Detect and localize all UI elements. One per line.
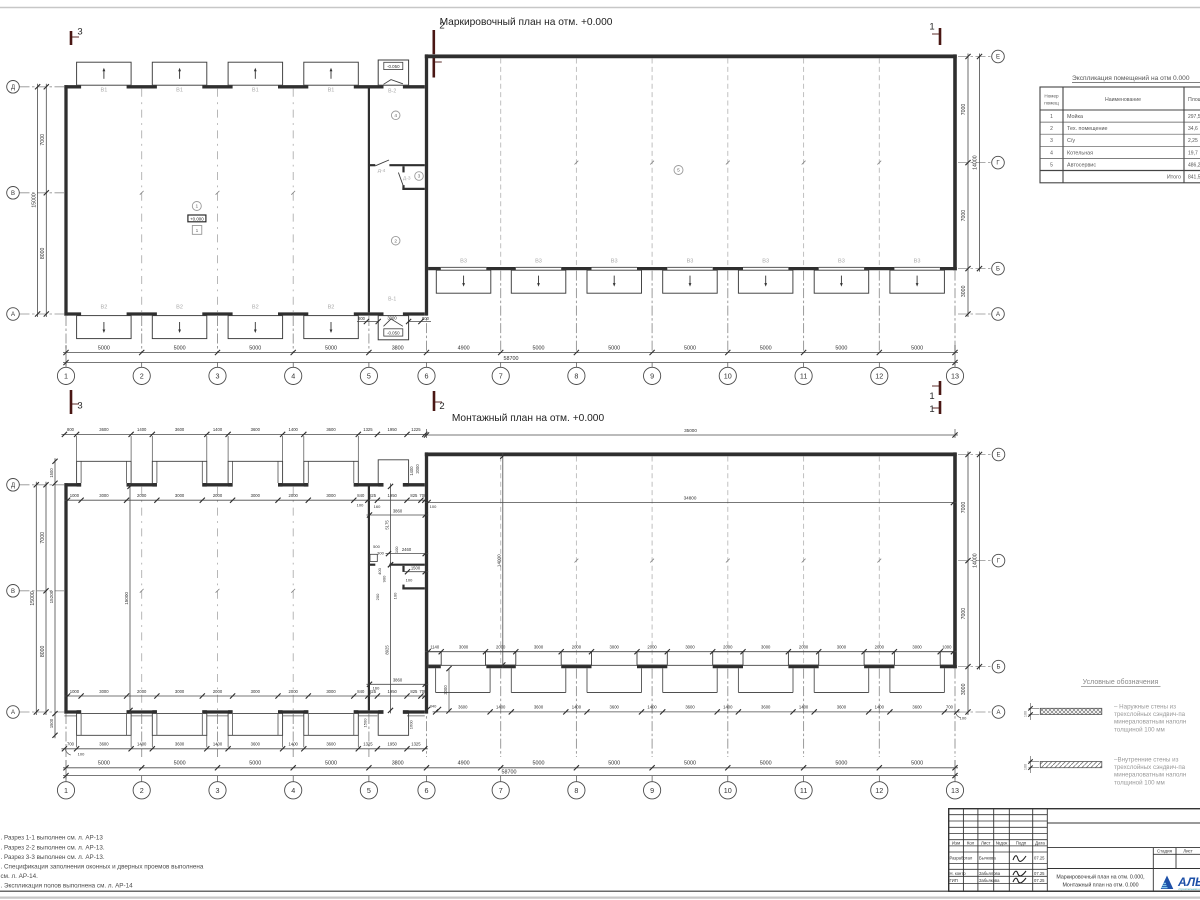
- svg-text:В1: В1: [176, 87, 183, 93]
- svg-text:1400: 1400: [496, 705, 506, 710]
- svg-text:15000: 15000: [32, 193, 38, 208]
- svg-text:297,5: 297,5: [1188, 114, 1200, 120]
- svg-text:3: 3: [418, 174, 421, 180]
- svg-text:В2: В2: [100, 305, 107, 311]
- svg-text:2000: 2000: [213, 493, 223, 498]
- svg-text:А: А: [11, 312, 15, 318]
- svg-text:1400: 1400: [213, 742, 223, 747]
- svg-text:3: 3: [216, 786, 220, 795]
- svg-text:минераловатным наполн: минераловатным наполн: [1114, 772, 1186, 779]
- svg-text:1400: 1400: [137, 742, 147, 747]
- svg-text:5000: 5000: [533, 345, 545, 351]
- svg-text:5000: 5000: [325, 345, 337, 351]
- svg-text:8: 8: [574, 372, 578, 381]
- svg-text:07.25: 07.25: [1034, 878, 1045, 883]
- svg-text:5000: 5000: [608, 760, 620, 766]
- svg-text:В3: В3: [460, 259, 467, 265]
- svg-text:14000: 14000: [497, 554, 502, 567]
- svg-text:толщиной 100 мм: толщиной 100 мм: [1114, 726, 1165, 733]
- svg-text:5000: 5000: [174, 760, 186, 766]
- svg-text:3000: 3000: [459, 644, 469, 649]
- svg-text:7000: 7000: [961, 104, 967, 116]
- svg-text:1325: 1325: [363, 742, 373, 747]
- svg-text:№док: №док: [996, 841, 1008, 846]
- svg-text:1000: 1000: [70, 689, 80, 694]
- svg-text:Забьякова: Забьякова: [979, 878, 1000, 883]
- svg-text:7: 7: [499, 372, 503, 381]
- svg-text:А: А: [996, 710, 1000, 716]
- svg-text:15000: 15000: [30, 591, 36, 606]
- svg-text:. Разрез 1-1 выполнен см. л. А: . Разрез 1-1 выполнен см. л. АР-13: [1, 835, 104, 842]
- svg-text:1950: 1950: [388, 493, 398, 498]
- svg-text:Маркировочный план на отм. +0.: Маркировочный план на отм. +0.000: [440, 17, 613, 28]
- svg-text:2,25: 2,25: [1188, 138, 1198, 144]
- svg-text:500: 500: [373, 544, 380, 549]
- svg-text:Д-3: Д-3: [403, 176, 411, 182]
- svg-text:3600: 3600: [610, 705, 620, 710]
- svg-text:1: 1: [196, 228, 199, 234]
- svg-text:5000: 5000: [608, 345, 620, 351]
- svg-text:1950: 1950: [388, 742, 398, 747]
- svg-text:11: 11: [800, 372, 807, 381]
- svg-text:1400: 1400: [799, 705, 809, 710]
- svg-text:ГИП: ГИП: [950, 878, 958, 883]
- svg-text:5000: 5000: [174, 345, 186, 351]
- svg-text:5: 5: [367, 372, 371, 381]
- svg-text:5000: 5000: [98, 345, 110, 351]
- svg-text:100: 100: [394, 546, 399, 553]
- svg-text:5000: 5000: [911, 345, 923, 351]
- svg-text:9: 9: [650, 786, 654, 795]
- svg-text:486,2: 486,2: [1188, 163, 1200, 169]
- svg-text:1400: 1400: [723, 705, 733, 710]
- svg-text:Подп: Подп: [1016, 841, 1027, 846]
- svg-text:5000: 5000: [835, 345, 847, 351]
- svg-text:3000: 3000: [961, 683, 967, 695]
- svg-text:1400: 1400: [572, 705, 582, 710]
- svg-text:5: 5: [677, 168, 680, 174]
- svg-text:400: 400: [377, 567, 382, 574]
- svg-text:Бычкова: Бычкова: [979, 856, 996, 861]
- svg-text:Площадь: Площадь: [1188, 97, 1200, 103]
- svg-text:Н. контр: Н. контр: [950, 871, 967, 876]
- svg-text:3000: 3000: [326, 493, 336, 498]
- svg-text:1: 1: [929, 391, 934, 402]
- svg-text:1140: 1140: [430, 644, 440, 649]
- svg-text:825: 825: [410, 493, 418, 498]
- svg-text:5000: 5000: [249, 345, 261, 351]
- svg-text:2: 2: [394, 238, 397, 244]
- svg-text:14000: 14000: [972, 155, 978, 170]
- svg-text:1: 1: [64, 786, 68, 795]
- svg-text:10: 10: [724, 786, 732, 795]
- svg-text:1325: 1325: [363, 427, 373, 432]
- svg-text:1: 1: [64, 372, 68, 381]
- svg-text:3600: 3600: [761, 705, 771, 710]
- svg-text:19,7: 19,7: [1188, 150, 1198, 156]
- svg-text:3600: 3600: [685, 705, 695, 710]
- svg-text:100: 100: [430, 504, 437, 509]
- svg-text:1400: 1400: [647, 705, 657, 710]
- svg-text:В1: В1: [100, 87, 107, 93]
- svg-text:3000: 3000: [387, 315, 397, 320]
- svg-text:С/у: С/у: [1067, 138, 1075, 144]
- svg-text:4: 4: [394, 113, 397, 119]
- svg-text:+0.000: +0.000: [190, 216, 204, 221]
- svg-text:1950: 1950: [388, 427, 398, 432]
- svg-text:100: 100: [1024, 711, 1028, 717]
- svg-text:толщиной 100 мм: толщиной 100 мм: [1114, 779, 1165, 786]
- svg-text:8000: 8000: [40, 248, 46, 260]
- svg-text:100: 100: [78, 752, 85, 757]
- svg-text:2000: 2000: [723, 644, 733, 649]
- svg-text:8: 8: [574, 786, 578, 795]
- svg-text:В-1: В-1: [388, 297, 396, 303]
- svg-text:Кол: Кол: [967, 841, 975, 846]
- svg-text:4: 4: [291, 786, 295, 795]
- svg-text:3600: 3600: [534, 705, 544, 710]
- svg-text:840: 840: [357, 493, 365, 498]
- svg-text:700: 700: [946, 705, 954, 710]
- svg-text:– Наружные стены из: – Наружные стены из: [1114, 704, 1176, 711]
- svg-text:Б: Б: [997, 665, 1001, 671]
- svg-text:В3: В3: [762, 259, 769, 265]
- svg-text:3000: 3000: [175, 689, 185, 694]
- svg-text:2: 2: [439, 401, 444, 412]
- svg-text:3600: 3600: [326, 427, 336, 432]
- svg-text:2000: 2000: [572, 644, 582, 649]
- svg-text:07.25: 07.25: [1034, 871, 1045, 876]
- svg-text:Д-4: Д-4: [378, 168, 386, 174]
- svg-text:7000: 7000: [961, 210, 967, 222]
- svg-text:7: 7: [499, 786, 503, 795]
- svg-text:8925: 8925: [384, 645, 389, 655]
- svg-text:14000: 14000: [972, 553, 978, 568]
- svg-text:Котельная: Котельная: [1067, 150, 1093, 156]
- svg-text:15200: 15200: [49, 590, 54, 603]
- svg-text:3600: 3600: [99, 742, 109, 747]
- svg-text:В2: В2: [176, 305, 183, 311]
- svg-text:160: 160: [373, 686, 380, 691]
- svg-text:1: 1: [1050, 114, 1053, 120]
- svg-text:3600: 3600: [912, 705, 922, 710]
- svg-text:Е: Е: [996, 453, 1000, 459]
- svg-text:900: 900: [382, 575, 387, 582]
- svg-text:5000: 5000: [325, 760, 337, 766]
- svg-text:34800: 34800: [684, 495, 697, 500]
- svg-text:840: 840: [357, 689, 365, 694]
- svg-text:1: 1: [195, 204, 198, 210]
- svg-text:2000: 2000: [415, 464, 420, 474]
- svg-text:3000: 3000: [251, 493, 261, 498]
- svg-text:2000: 2000: [875, 644, 885, 649]
- svg-text:2: 2: [140, 786, 144, 795]
- svg-text:2: 2: [140, 372, 144, 381]
- svg-text:3000: 3000: [251, 689, 261, 694]
- svg-text:3000: 3000: [761, 644, 771, 649]
- svg-text:Условные обозначения: Условные обозначения: [1083, 678, 1159, 686]
- svg-text:3000: 3000: [961, 285, 967, 297]
- svg-text:2000: 2000: [137, 689, 147, 694]
- svg-text:3000: 3000: [534, 644, 544, 649]
- svg-text:3000: 3000: [99, 689, 109, 694]
- svg-text:3000: 3000: [99, 493, 109, 498]
- svg-text:3600: 3600: [99, 427, 109, 432]
- svg-text:А: А: [11, 710, 15, 716]
- svg-text:Разработал: Разработал: [950, 856, 973, 861]
- svg-text:В: В: [11, 191, 15, 197]
- svg-text:7000: 7000: [961, 608, 967, 620]
- svg-text:11: 11: [800, 786, 807, 795]
- svg-text:3600: 3600: [175, 427, 185, 432]
- svg-text:В1: В1: [328, 87, 335, 93]
- svg-text:Забьялова: Забьялова: [979, 871, 1001, 876]
- svg-text:В: В: [11, 589, 15, 595]
- svg-text:841,5: 841,5: [1188, 175, 1200, 181]
- svg-text:см. л. АР-14.: см. л. АР-14.: [1, 873, 39, 880]
- svg-text:1: 1: [929, 22, 934, 33]
- svg-text:3000: 3000: [443, 685, 448, 695]
- svg-text:3: 3: [216, 372, 220, 381]
- svg-text:1950: 1950: [388, 689, 398, 694]
- svg-text:35000: 35000: [684, 428, 697, 433]
- svg-text:1400: 1400: [409, 466, 414, 476]
- svg-text:. Разрез 3-3 выполнен см. л. А: . Разрез 3-3 выполнен см. л. АР-13.: [1, 854, 105, 861]
- svg-text:5: 5: [367, 786, 371, 795]
- svg-text:3000: 3000: [685, 644, 695, 649]
- svg-text:1400: 1400: [213, 427, 223, 432]
- svg-text:Мойка: Мойка: [1067, 113, 1083, 120]
- svg-text:825: 825: [369, 493, 377, 498]
- svg-text:1000: 1000: [942, 644, 952, 649]
- svg-text:1: 1: [929, 404, 934, 415]
- svg-text:строительная компания: строительная компания: [1179, 887, 1200, 891]
- svg-text:Тех. помещение: Тех. помещение: [1067, 126, 1108, 132]
- svg-text:9: 9: [650, 372, 654, 381]
- svg-text:5000: 5000: [533, 760, 545, 766]
- svg-text:3600: 3600: [175, 742, 185, 747]
- svg-text:8000: 8000: [40, 646, 46, 658]
- svg-text:В3: В3: [838, 259, 845, 265]
- svg-text:100: 100: [406, 578, 413, 583]
- svg-text:2000: 2000: [647, 644, 657, 649]
- svg-text:100: 100: [960, 716, 967, 721]
- svg-text:-0.050: -0.050: [387, 331, 400, 336]
- svg-text:5000: 5000: [684, 760, 696, 766]
- svg-text:3800: 3800: [392, 345, 404, 351]
- svg-text:13: 13: [951, 372, 959, 381]
- svg-text:5000: 5000: [911, 760, 923, 766]
- svg-text:4: 4: [1050, 150, 1053, 156]
- svg-text:3: 3: [1050, 138, 1053, 144]
- svg-text:Б: Б: [996, 267, 1000, 273]
- svg-text:5000: 5000: [684, 345, 696, 351]
- svg-text:В1: В1: [252, 87, 259, 93]
- svg-text:Лист: Лист: [981, 841, 991, 846]
- svg-text:5000: 5000: [760, 345, 772, 351]
- svg-text:12: 12: [875, 372, 883, 381]
- svg-text:3000: 3000: [610, 644, 620, 649]
- svg-text:. Разрез 2-2 выполнен см. л. А: . Разрез 2-2 выполнен см. л. АР-13.: [1, 844, 105, 851]
- svg-text:Стадия: Стадия: [1157, 849, 1173, 854]
- svg-text:7000: 7000: [40, 532, 46, 544]
- svg-text:10: 10: [724, 372, 732, 381]
- svg-text:2460: 2460: [402, 547, 412, 552]
- svg-text:07.25: 07.25: [1034, 856, 1045, 861]
- svg-text:–Внутренние стены из: –Внутренние стены из: [1114, 757, 1179, 764]
- svg-text:13: 13: [951, 786, 959, 795]
- svg-text:. Экспликация полов выполнена: . Экспликация полов выполнена см. л. АР-…: [1, 883, 134, 890]
- svg-text:2000: 2000: [289, 689, 299, 694]
- svg-text:1325: 1325: [411, 742, 421, 747]
- svg-text:1600: 1600: [409, 720, 414, 730]
- svg-text:3600: 3600: [458, 705, 468, 710]
- svg-text:1225: 1225: [411, 427, 421, 432]
- svg-text:Е: Е: [996, 55, 1000, 61]
- svg-text:Итого: Итого: [1167, 175, 1181, 181]
- svg-text:3000: 3000: [175, 493, 185, 498]
- svg-text:2000: 2000: [799, 644, 809, 649]
- svg-text:2000: 2000: [289, 493, 299, 498]
- svg-text:3600: 3600: [251, 427, 261, 432]
- svg-text:1500: 1500: [49, 468, 54, 478]
- svg-text:3600: 3600: [251, 742, 261, 747]
- svg-text:2000: 2000: [213, 689, 223, 694]
- svg-text:34,6: 34,6: [1188, 126, 1198, 132]
- svg-text:3600: 3600: [837, 705, 847, 710]
- svg-text:5000: 5000: [760, 760, 772, 766]
- svg-text:помещ: помещ: [1044, 101, 1059, 106]
- svg-text:1400: 1400: [289, 427, 299, 432]
- svg-text:Монтажный план на отм. 0.000: Монтажный план на отм. 0.000: [1062, 881, 1138, 888]
- svg-text:2: 2: [439, 21, 444, 32]
- svg-text:В-2: В-2: [388, 88, 396, 94]
- svg-text:2: 2: [1050, 126, 1053, 132]
- svg-text:В2: В2: [252, 305, 259, 311]
- svg-text:300: 300: [377, 551, 384, 556]
- svg-text:Номер: Номер: [1044, 94, 1059, 99]
- svg-text:3000: 3000: [837, 644, 847, 649]
- svg-text:3: 3: [77, 27, 82, 38]
- svg-text:трехслойных сэндвич-па: трехслойных сэндвич-па: [1114, 764, 1186, 771]
- svg-text:58700: 58700: [502, 769, 517, 775]
- svg-text:3860: 3860: [393, 678, 403, 683]
- svg-text:трехслойных сэндвич-па: трехслойных сэндвич-па: [1114, 711, 1186, 718]
- svg-text:-0.050: -0.050: [387, 64, 400, 69]
- svg-text:3600: 3600: [326, 742, 336, 747]
- svg-text:1400: 1400: [289, 742, 299, 747]
- svg-text:800: 800: [422, 316, 430, 321]
- svg-text:Лист: Лист: [1183, 849, 1193, 854]
- svg-text:6: 6: [425, 786, 429, 795]
- svg-text:5000: 5000: [98, 760, 110, 766]
- svg-text:Наименование: Наименование: [1105, 97, 1141, 103]
- svg-text:3800: 3800: [392, 760, 404, 766]
- svg-text:В3: В3: [914, 259, 921, 265]
- svg-text:3: 3: [77, 401, 82, 412]
- svg-text:15000: 15000: [124, 592, 129, 605]
- svg-text:5175: 5175: [384, 520, 389, 530]
- svg-text:В3: В3: [535, 259, 542, 265]
- svg-text:4: 4: [291, 372, 295, 381]
- svg-text:700: 700: [67, 742, 75, 747]
- svg-text:минераловатным наполн: минераловатным наполн: [1114, 719, 1186, 726]
- svg-text:Д: Д: [11, 85, 15, 91]
- svg-text:3000: 3000: [912, 644, 922, 649]
- svg-text:58700: 58700: [504, 356, 519, 362]
- svg-text:12: 12: [875, 786, 883, 795]
- svg-text:. Спецификация заполнения окон: . Спецификация заполнения оконных и двер…: [1, 863, 204, 870]
- svg-text:1000: 1000: [70, 493, 80, 498]
- svg-text:5000: 5000: [835, 760, 847, 766]
- svg-text:840: 840: [430, 704, 437, 709]
- svg-text:1400: 1400: [137, 427, 147, 432]
- svg-text:800: 800: [67, 427, 75, 432]
- svg-text:800: 800: [358, 316, 366, 321]
- svg-text:Дата: Дата: [1035, 841, 1045, 846]
- svg-text:100: 100: [392, 592, 397, 599]
- svg-text:Экспликация помещений на отм 0: Экспликация помещений на отм 0.000: [1072, 74, 1190, 82]
- svg-text:Изм: Изм: [952, 841, 960, 846]
- svg-text:100: 100: [1024, 764, 1028, 770]
- svg-text:А: А: [996, 312, 1000, 318]
- svg-text:1400: 1400: [875, 705, 885, 710]
- svg-text:1500: 1500: [411, 565, 421, 570]
- svg-text:2000: 2000: [496, 644, 506, 649]
- svg-text:7000: 7000: [961, 502, 967, 514]
- svg-text:5: 5: [1050, 163, 1053, 169]
- svg-text:5000: 5000: [249, 760, 261, 766]
- svg-text:160: 160: [374, 504, 381, 509]
- svg-text:7000: 7000: [40, 134, 46, 146]
- svg-text:1500: 1500: [49, 718, 54, 728]
- svg-text:В2: В2: [328, 305, 335, 311]
- svg-text:4900: 4900: [458, 345, 470, 351]
- svg-text:1500: 1500: [363, 718, 368, 728]
- svg-text:Монтажный план на отм. +0.000: Монтажный план на отм. +0.000: [452, 413, 605, 424]
- svg-text:200: 200: [375, 593, 380, 600]
- svg-text:В3: В3: [611, 259, 618, 265]
- svg-text:6: 6: [425, 372, 429, 381]
- svg-text:Автосервис: Автосервис: [1067, 163, 1096, 169]
- svg-text:Маркировочный план на отм. 0.0: Маркировочный план на отм. 0.000,: [1056, 873, 1144, 880]
- svg-text:2000: 2000: [137, 493, 147, 498]
- svg-text:825: 825: [410, 689, 418, 694]
- svg-text:Д: Д: [11, 483, 15, 489]
- svg-text:3860: 3860: [393, 508, 403, 513]
- svg-text:100: 100: [357, 503, 364, 508]
- svg-text:В3: В3: [687, 259, 694, 265]
- svg-text:4900: 4900: [458, 760, 470, 766]
- svg-text:3000: 3000: [326, 689, 336, 694]
